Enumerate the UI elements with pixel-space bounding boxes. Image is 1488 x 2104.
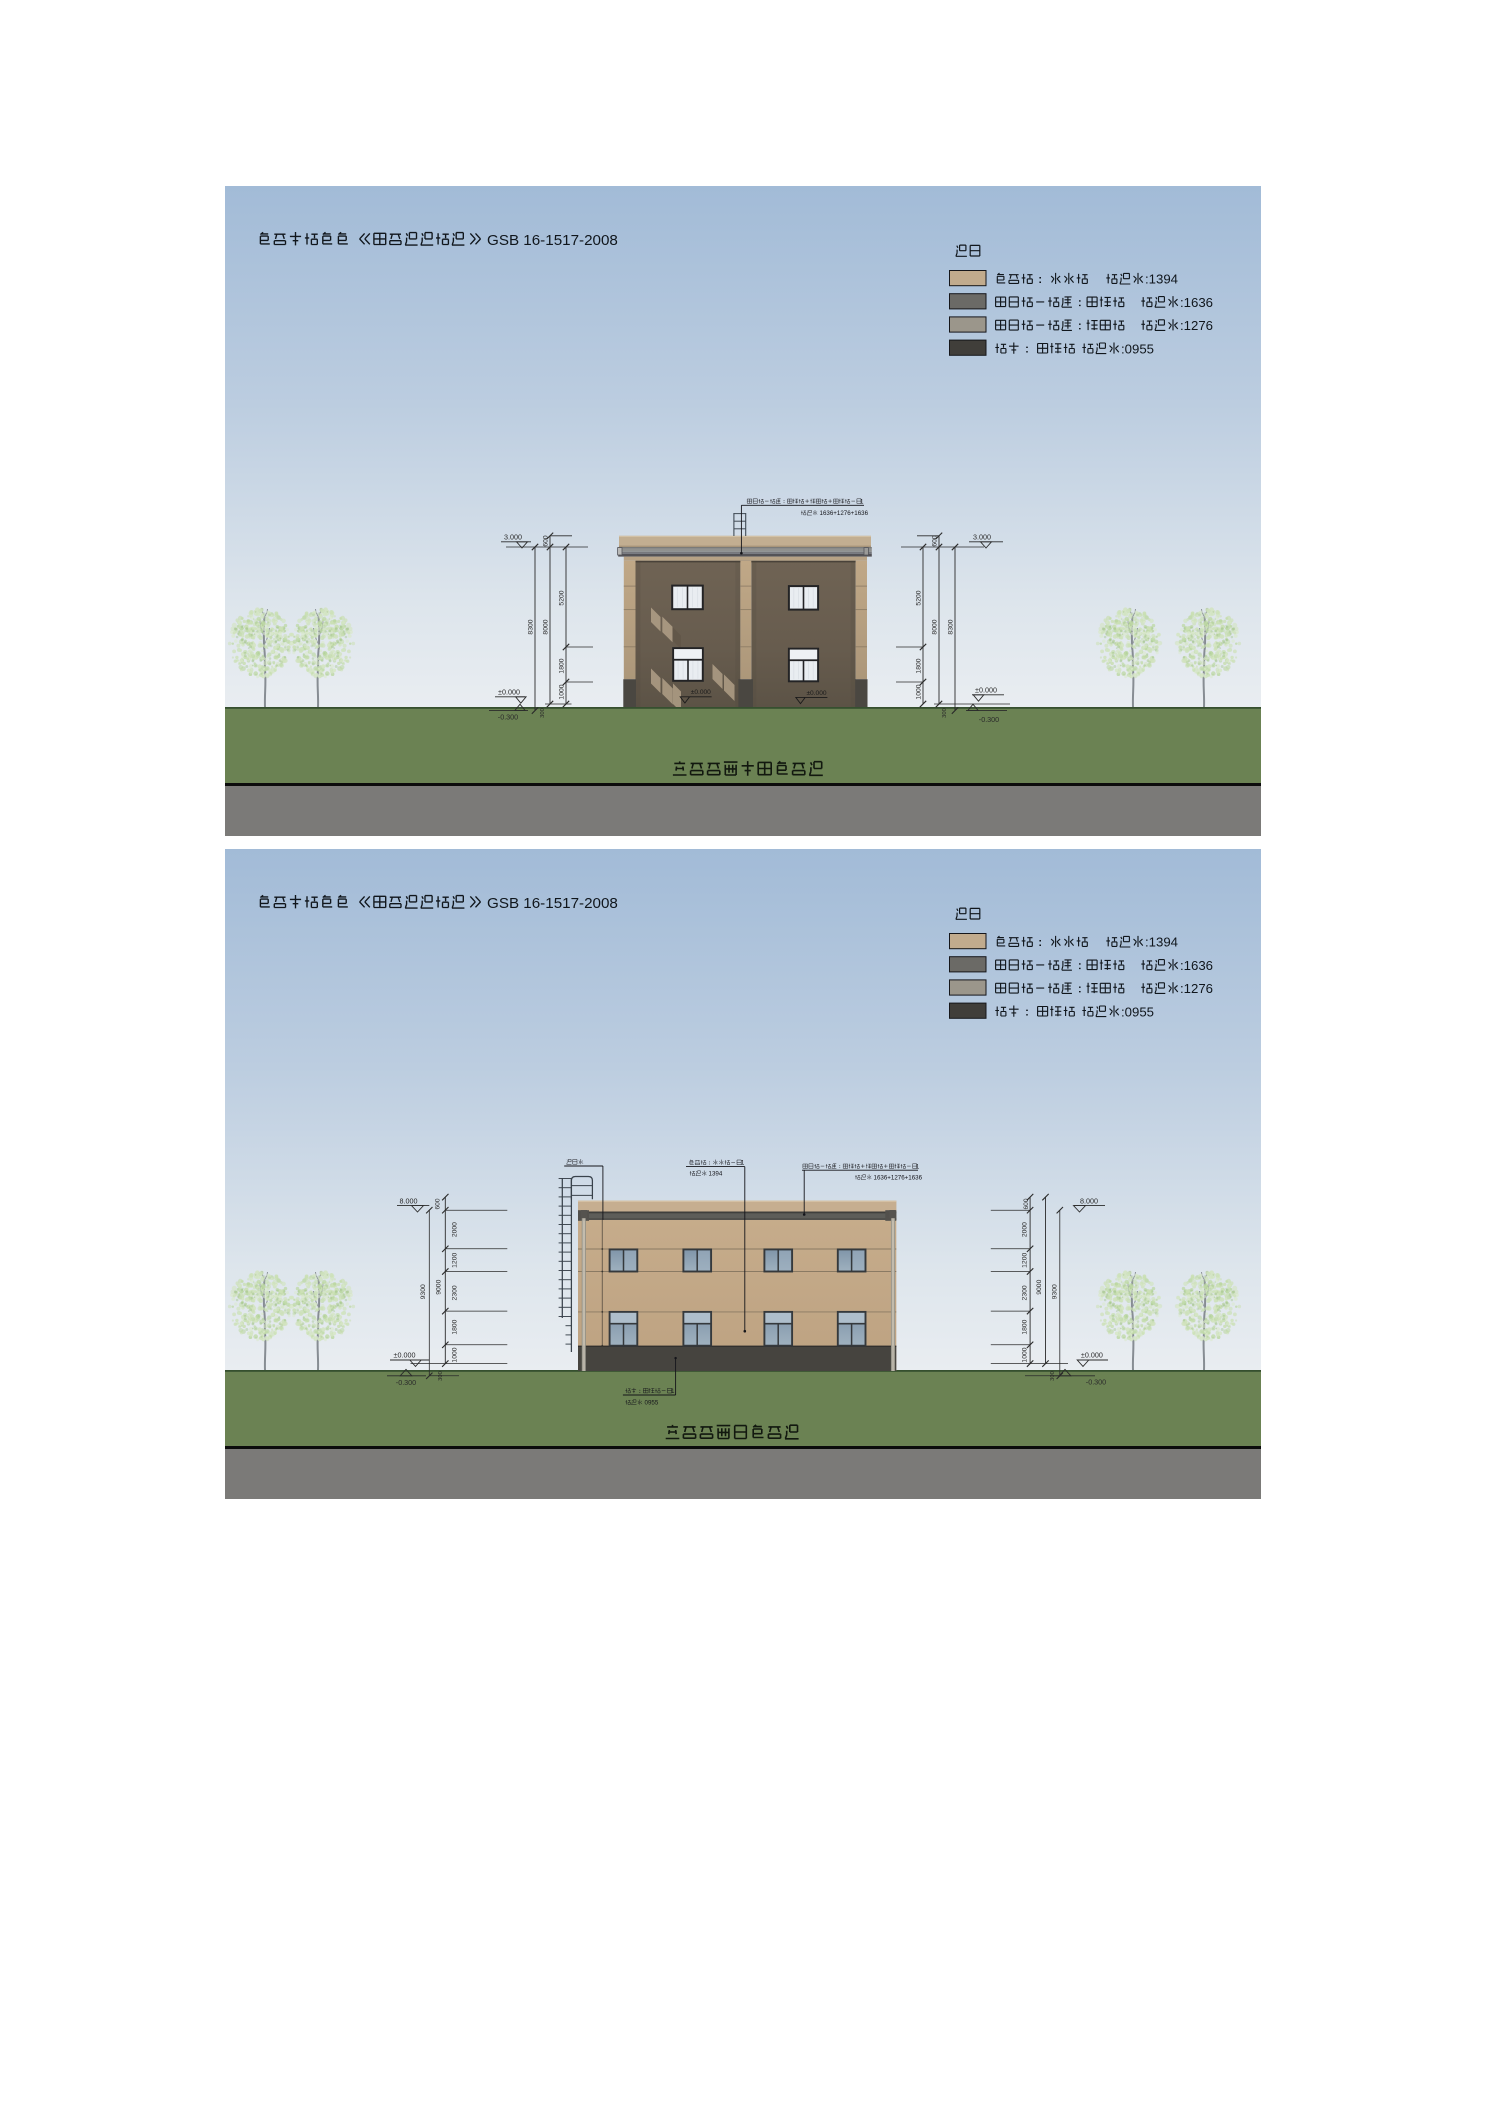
- svg-text:1: 1: [860, 498, 864, 505]
- svg-text:5200: 5200: [559, 590, 566, 605]
- svg-text:600: 600: [543, 535, 550, 547]
- svg-text:600: 600: [932, 535, 939, 547]
- svg-text:8300: 8300: [948, 619, 955, 634]
- svg-text:3.000: 3.000: [973, 533, 991, 542]
- svg-text:8.000: 8.000: [400, 1196, 418, 1205]
- svg-text:2000: 2000: [451, 1222, 458, 1237]
- svg-text:3.000: 3.000: [504, 533, 522, 542]
- svg-text::0955: :0955: [1121, 1004, 1154, 1019]
- svg-text::1636: :1636: [1180, 295, 1213, 310]
- svg-text:GSB 16-1517-2008: GSB 16-1517-2008: [487, 232, 618, 249]
- svg-text:1000: 1000: [451, 1347, 458, 1362]
- svg-text:5200: 5200: [916, 590, 923, 605]
- svg-text:1: 1: [671, 1388, 675, 1395]
- svg-text:1200: 1200: [451, 1253, 458, 1268]
- svg-text:-0.300: -0.300: [1086, 1378, 1106, 1387]
- svg-text:-0.300: -0.300: [979, 715, 999, 724]
- svg-text:8.000: 8.000: [1080, 1196, 1098, 1205]
- svg-text:1: 1: [916, 1163, 920, 1170]
- svg-text:600: 600: [434, 1198, 441, 1209]
- svg-text:1800: 1800: [916, 658, 923, 673]
- svg-text:300: 300: [942, 708, 948, 718]
- svg-text:±0.000: ±0.000: [806, 690, 826, 697]
- svg-text:8000: 8000: [932, 619, 939, 634]
- svg-text:1800: 1800: [451, 1319, 458, 1334]
- svg-text::1636: :1636: [1180, 958, 1213, 973]
- svg-text::1276: :1276: [1180, 318, 1213, 333]
- svg-text:1000: 1000: [559, 684, 566, 699]
- svg-text:1636+1276+1636: 1636+1276+1636: [820, 510, 869, 517]
- svg-text:600: 600: [1023, 1198, 1030, 1209]
- svg-text:2300: 2300: [451, 1285, 458, 1300]
- svg-text::1276: :1276: [1180, 981, 1213, 996]
- svg-text:1394: 1394: [709, 1171, 723, 1178]
- svg-text:9300: 9300: [1052, 1284, 1059, 1299]
- svg-text::1394: :1394: [1145, 272, 1178, 287]
- svg-text:1: 1: [741, 1160, 745, 1167]
- svg-text:±0.000: ±0.000: [1081, 1351, 1103, 1360]
- svg-text:9000: 9000: [435, 1279, 442, 1294]
- svg-text::0955: :0955: [1121, 341, 1154, 356]
- svg-text:±0.000: ±0.000: [691, 689, 711, 696]
- svg-text::1394: :1394: [1145, 935, 1178, 950]
- svg-text:8000: 8000: [543, 619, 550, 634]
- svg-text:±0.000: ±0.000: [975, 685, 997, 694]
- svg-text:1800: 1800: [1022, 1319, 1029, 1334]
- svg-text:-0.300: -0.300: [396, 1378, 416, 1387]
- svg-text:1636+1276+1636: 1636+1276+1636: [874, 1174, 923, 1181]
- svg-text:1800: 1800: [559, 658, 566, 673]
- svg-text:2000: 2000: [1022, 1222, 1029, 1237]
- svg-text:9300: 9300: [420, 1284, 427, 1299]
- svg-text:-0.300: -0.300: [498, 712, 518, 721]
- svg-text:GSB 16-1517-2008: GSB 16-1517-2008: [487, 895, 618, 912]
- svg-text:2300: 2300: [1022, 1285, 1029, 1300]
- svg-text:300: 300: [540, 708, 546, 718]
- svg-text:1000: 1000: [1022, 1347, 1029, 1362]
- svg-text:1200: 1200: [1022, 1253, 1029, 1268]
- svg-text:0955: 0955: [645, 1400, 659, 1407]
- svg-text:±0.000: ±0.000: [498, 687, 520, 696]
- svg-text:±0.000: ±0.000: [394, 1351, 416, 1360]
- svg-text:8300: 8300: [528, 619, 535, 634]
- svg-text:1000: 1000: [916, 684, 923, 699]
- svg-text:9000: 9000: [1036, 1279, 1043, 1294]
